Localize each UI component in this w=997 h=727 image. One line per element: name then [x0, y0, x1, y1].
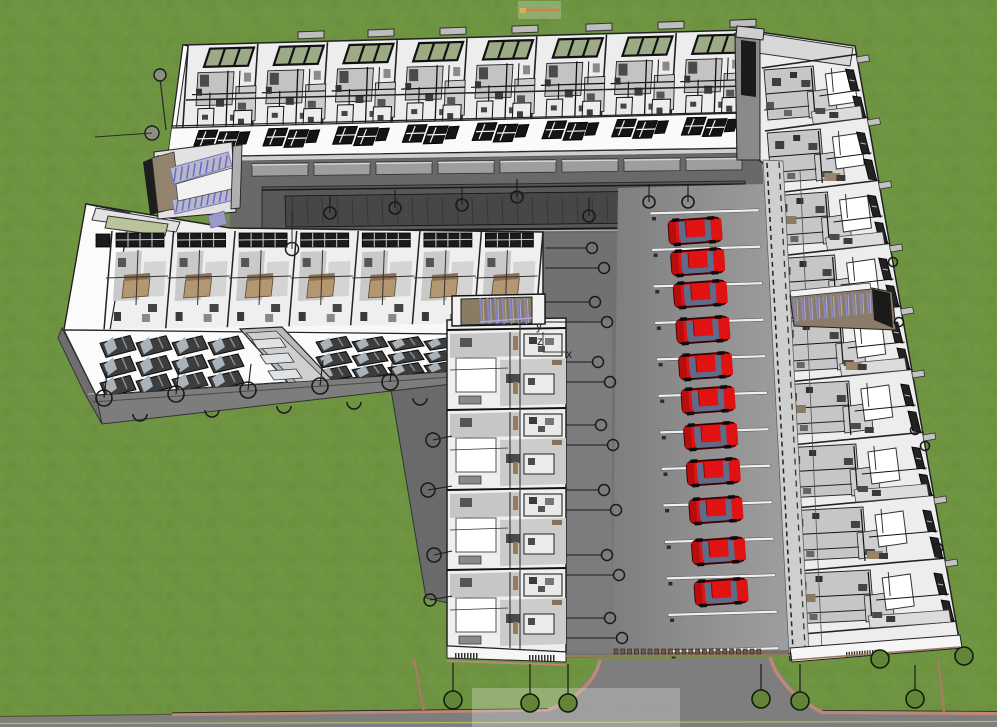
svg-text:z: z [537, 334, 543, 348]
svg-text:y: y [536, 319, 542, 333]
svg-text:x: x [566, 347, 572, 361]
